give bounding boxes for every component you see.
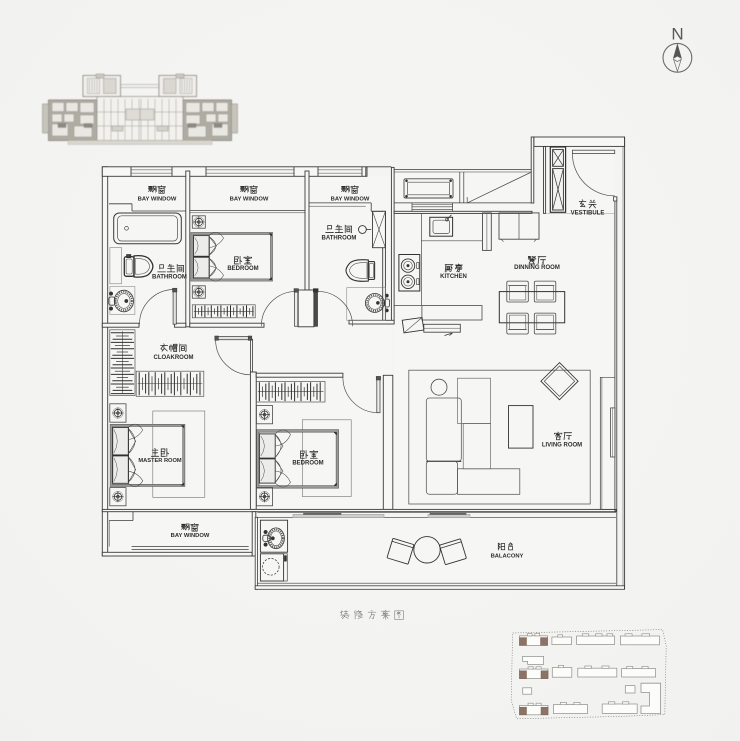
svg-text:BAY WINDOW: BAY WINDOW [331, 197, 370, 203]
svg-text:BAY WINDOW: BAY WINDOW [230, 197, 269, 203]
svg-text:BEDROOM: BEDROOM [292, 461, 323, 467]
svg-text:CLOAKROOM: CLOAKROOM [154, 355, 194, 361]
svg-text:BAY WINDOW: BAY WINDOW [171, 533, 210, 539]
svg-text:LIVING ROOM: LIVING ROOM [542, 443, 582, 449]
svg-text:BAY WINDOW: BAY WINDOW [138, 197, 177, 203]
svg-text:BEDROOM: BEDROOM [227, 266, 258, 272]
svg-text:N: N [671, 25, 683, 44]
svg-text:MASTER ROOM: MASTER ROOM [138, 458, 182, 464]
svg-text:BALACONY: BALACONY [491, 554, 524, 560]
svg-text:VESTIBULE: VESTIBULE [571, 211, 605, 217]
svg-text:BATHROOM: BATHROOM [152, 274, 187, 280]
svg-text:BATHROOM: BATHROOM [322, 235, 357, 241]
svg-text:KITCHEN: KITCHEN [440, 274, 467, 280]
svg-text:DINNING ROOM: DINNING ROOM [514, 265, 560, 271]
